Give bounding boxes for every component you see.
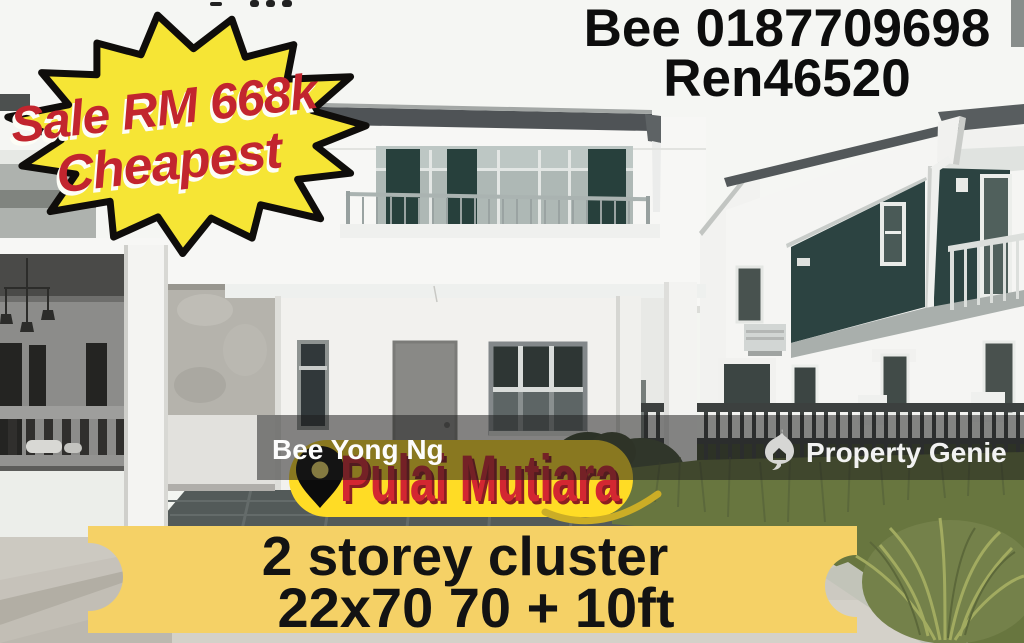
- svg-text:22x70 70 + 10ft: 22x70 70 + 10ft: [278, 576, 675, 633]
